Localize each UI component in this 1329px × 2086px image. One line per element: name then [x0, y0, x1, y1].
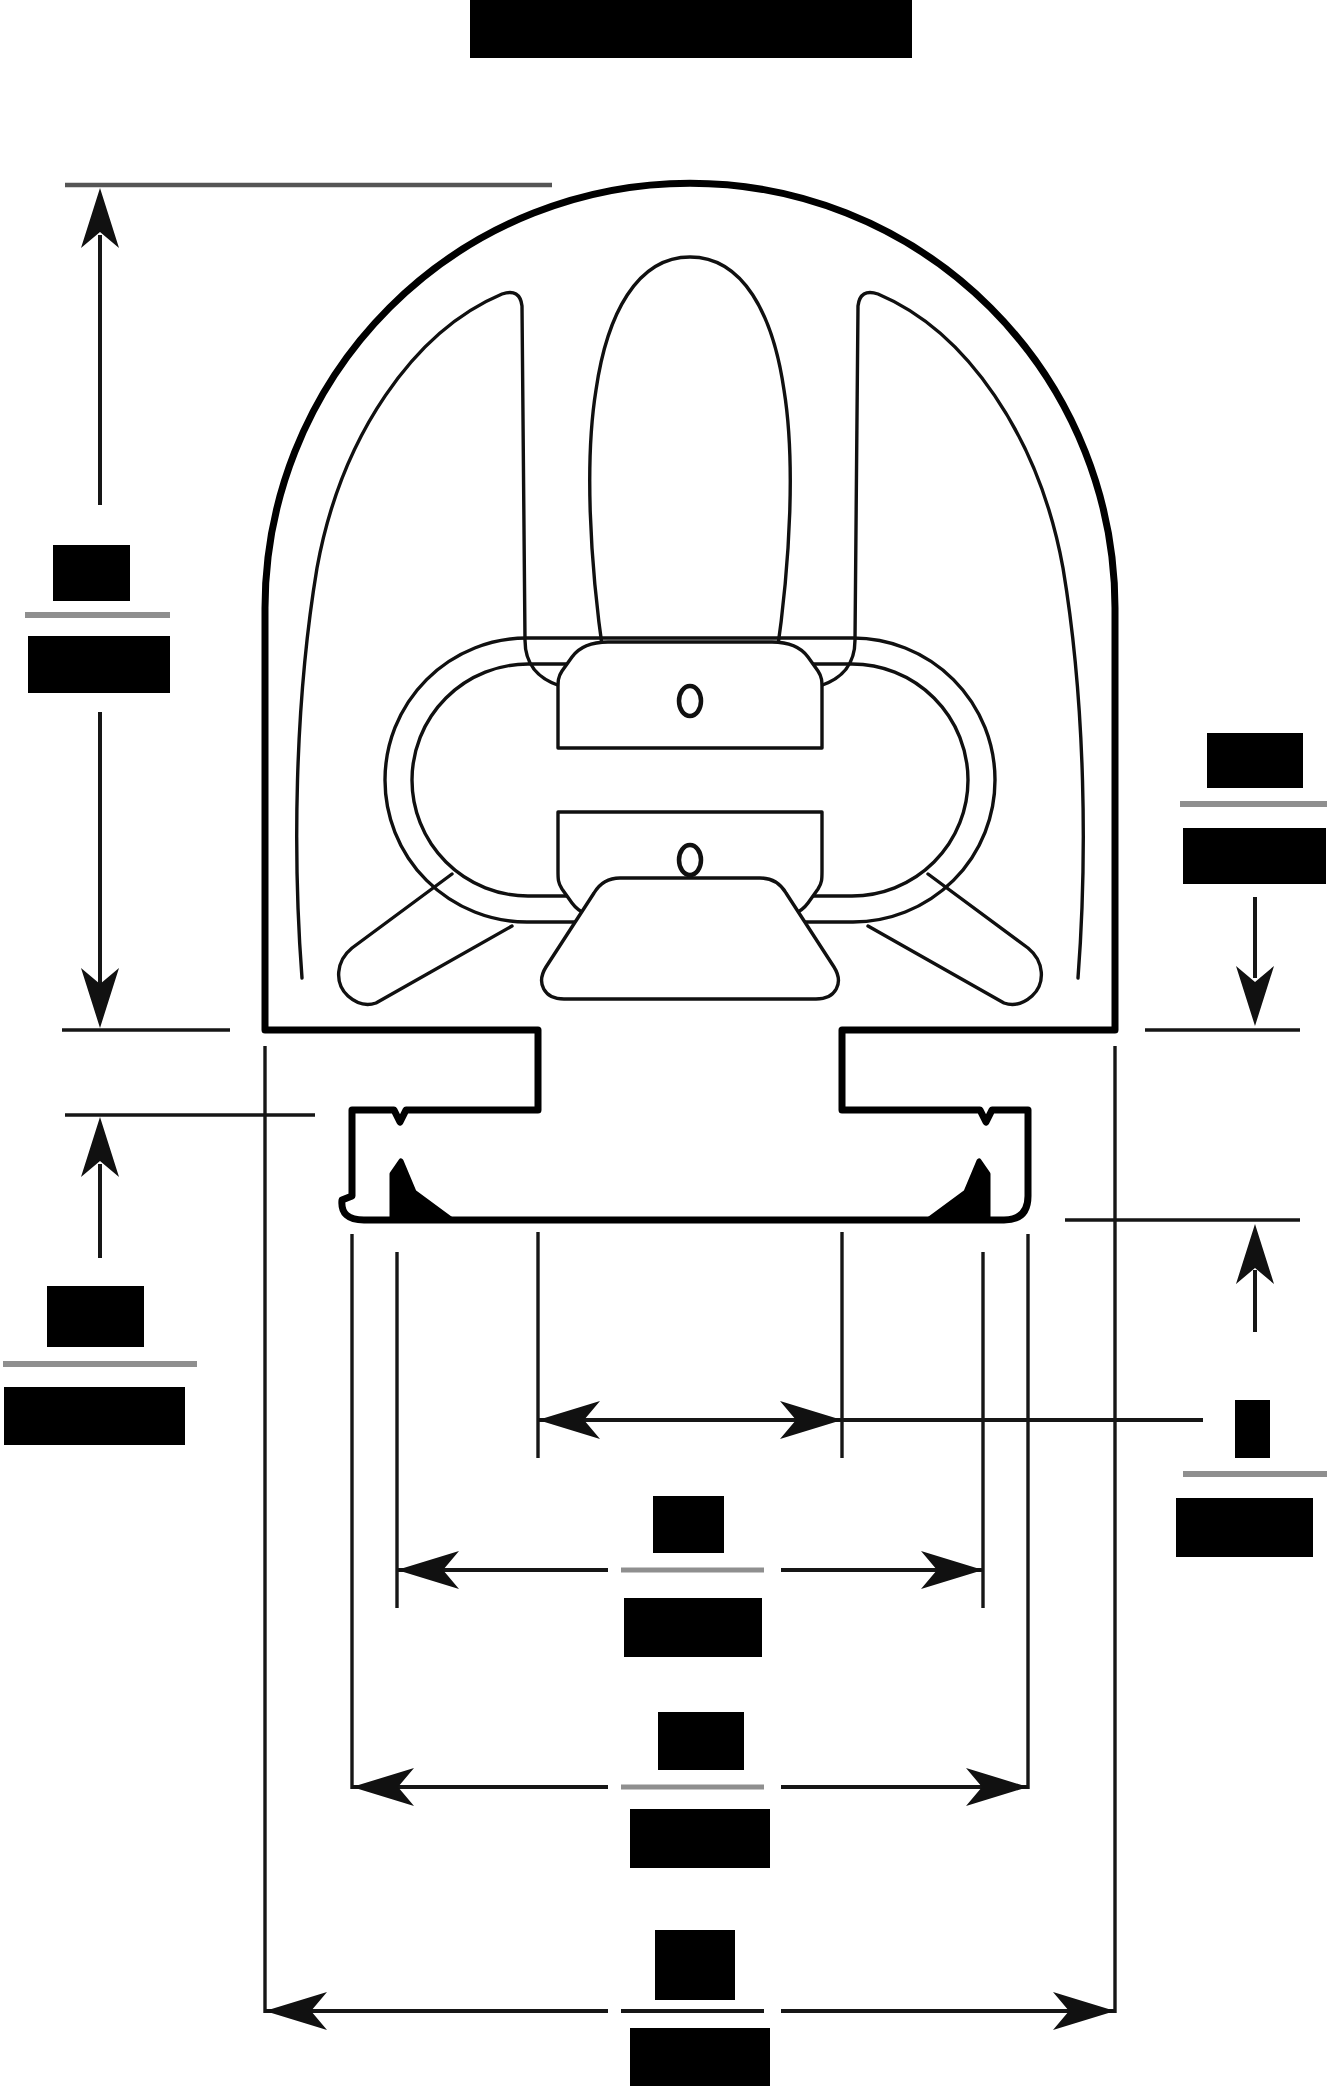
label-stem-width-bottom: [1176, 1498, 1313, 1557]
label-dome-height-top: [53, 545, 130, 601]
label-slot-width-top: [653, 1496, 724, 1553]
label-base-height-bottom: [1183, 828, 1326, 884]
lower-screw-hole: [679, 845, 701, 875]
label-flange-width-bottom: [630, 1809, 770, 1868]
label-stem-width-top: [1235, 1400, 1270, 1458]
label-flange-width-top: [658, 1712, 744, 1770]
label-stem-height-top: [47, 1286, 144, 1347]
page-background: [0, 0, 1329, 2086]
title-redaction-box: [470, 0, 912, 58]
fraction-bar: [1183, 1471, 1327, 1477]
label-base-height-top: [1207, 733, 1303, 788]
fraction-bar: [25, 612, 170, 618]
drawing-canvas: [0, 0, 1329, 2086]
title-block: [470, 0, 912, 58]
label-slot-width-bottom: [624, 1598, 762, 1657]
upper-screw-hole: [679, 686, 701, 716]
label-stem-height-bottom: [4, 1387, 185, 1445]
fraction-bar: [1180, 801, 1327, 807]
fraction-bar: [3, 1361, 197, 1367]
label-overall-width-top: [655, 1930, 735, 2000]
label-dome-height-bottom: [28, 636, 170, 693]
label-overall-width-bottom: [630, 2028, 770, 2086]
